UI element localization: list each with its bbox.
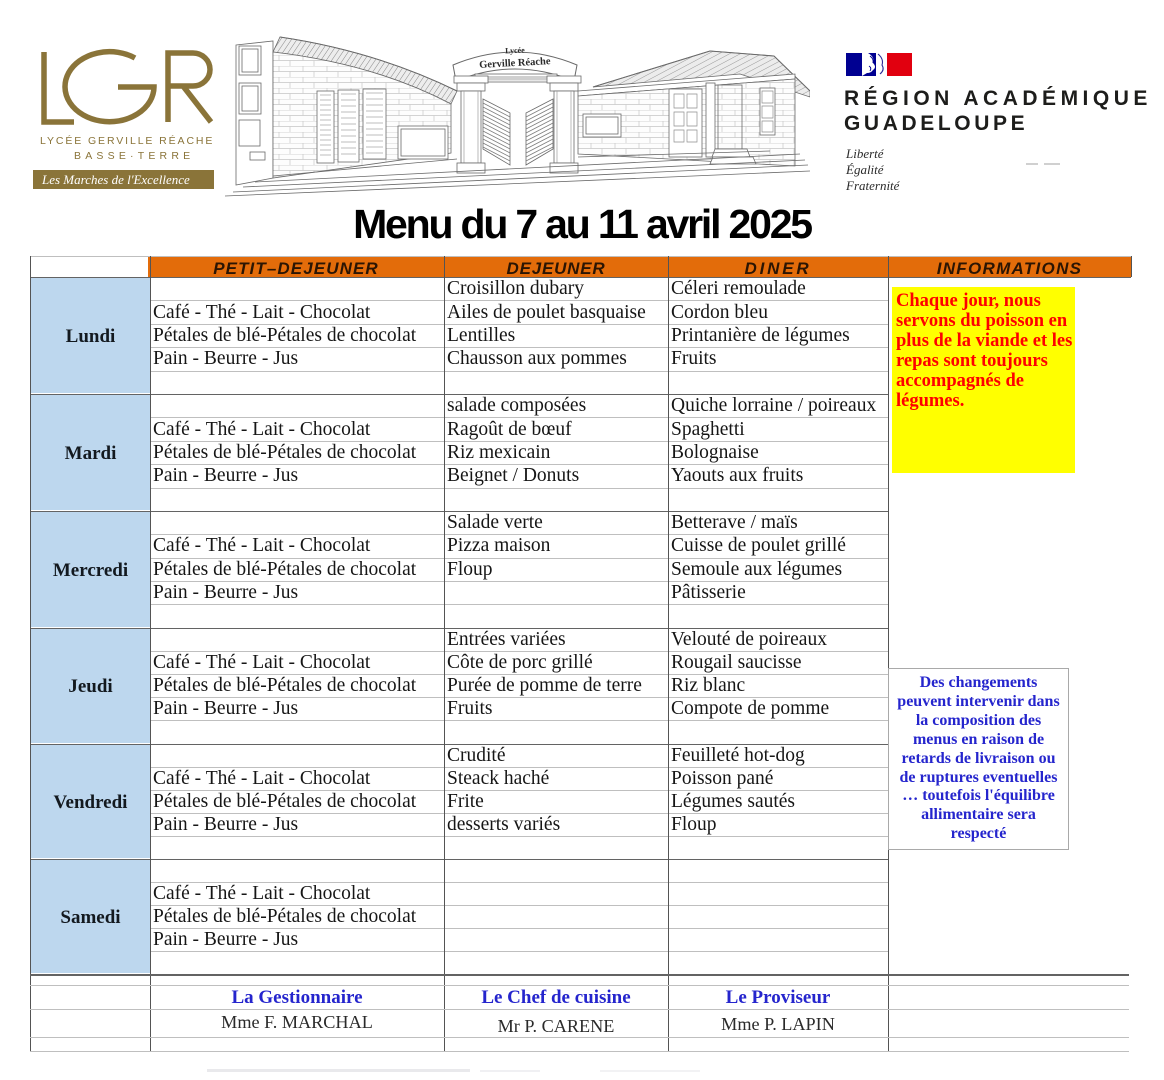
svg-text:LYCÉE GERVILLE RÉACHE: LYCÉE GERVILLE RÉACHE — [40, 134, 214, 147]
svg-text:RÉGION ACADÉMIQUE: RÉGION ACADÉMIQUE — [844, 87, 1152, 110]
svg-text:GUADELOUPE: GUADELOUPE — [844, 112, 1028, 135]
svg-text:Liberté: Liberté — [845, 146, 885, 161]
svg-text:Lycée: Lycée — [505, 46, 525, 56]
svg-text:Fraternité: Fraternité — [845, 178, 901, 193]
svg-text:BASSE·TERRE: BASSE·TERRE — [74, 150, 194, 162]
svg-text:Égalité: Égalité — [845, 162, 885, 177]
svg-text:Les Marches de l'Excellence: Les Marches de l'Excellence — [41, 172, 190, 187]
